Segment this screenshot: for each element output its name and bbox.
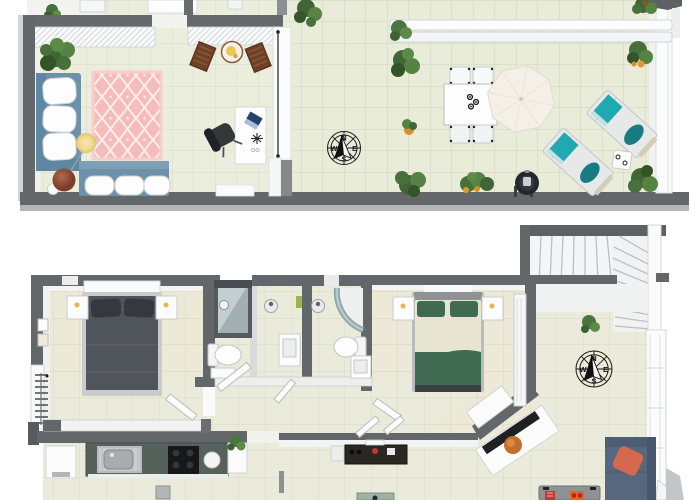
svg-text:N: N bbox=[341, 136, 346, 143]
svg-text:S: S bbox=[591, 377, 596, 386]
svg-text:W: W bbox=[331, 146, 338, 153]
svg-text:W: W bbox=[579, 365, 587, 374]
svg-text:E: E bbox=[603, 365, 608, 374]
svg-text:S: S bbox=[342, 157, 347, 164]
svg-text:N: N bbox=[591, 354, 596, 363]
svg-text:E: E bbox=[352, 146, 357, 153]
